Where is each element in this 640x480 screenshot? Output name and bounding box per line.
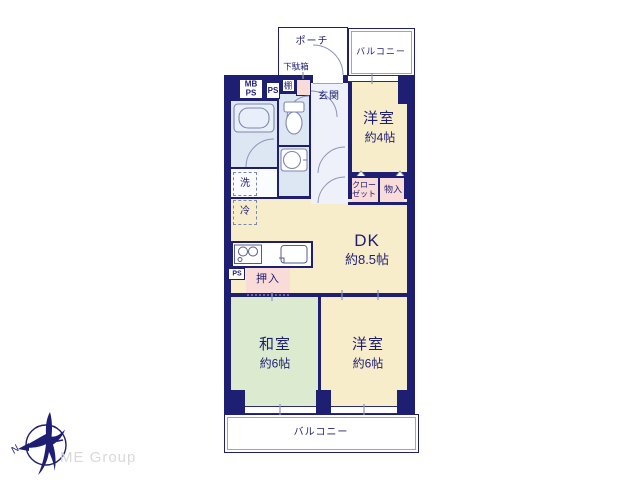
toilet-room <box>279 94 309 145</box>
balcony-bottom-label: バルコニー <box>294 428 349 439</box>
kitchen-counter <box>231 241 313 268</box>
dk-name-label: DK <box>354 232 380 250</box>
ps-mid-label: PS <box>232 270 241 277</box>
corner-pillar-bottom-right <box>397 390 407 406</box>
corner-pillar-top-right <box>398 82 407 104</box>
japanese-room-name-label: 和室 <box>259 337 291 353</box>
floorplan-canvas: N ポーチ バルコニー 下駄箱 玄関 MB PS PS 棚 洗 冷 洋室 約4帖… <box>0 0 640 480</box>
closet-label-line2: ゼット <box>352 190 376 199</box>
west4-name-label: 洋室 <box>363 111 395 127</box>
entrance-door-opening <box>313 75 343 84</box>
corner-pillar-bottom-left <box>231 390 245 406</box>
compass-north-label: N <box>9 443 22 457</box>
shelf-label: 棚 <box>284 82 293 91</box>
meter-box-label: MB PS <box>245 80 257 97</box>
window-west6 <box>331 406 397 414</box>
hall-partition-wall <box>348 83 352 172</box>
dk-size-label: 約8.5帖 <box>345 253 389 267</box>
window-west4 <box>348 75 398 82</box>
closet-bottom-wall <box>348 202 407 205</box>
west4-size-label: 約4帖 <box>365 132 396 145</box>
company-name: ME Group <box>60 449 136 466</box>
pillar-bottom-middle <box>316 390 331 406</box>
bathroom <box>231 101 277 167</box>
shoe-cabinet-box <box>296 79 311 96</box>
storage-label: 物入 <box>384 185 402 194</box>
window-japanese-room <box>245 406 316 414</box>
balcony-top-label: バルコニー <box>356 47 406 56</box>
west6-name-label: 洋室 <box>352 337 384 353</box>
ps-top-label: PS <box>268 87 279 95</box>
closet-label: クロー ゼット <box>352 181 376 198</box>
west6-size-label: 約6帖 <box>353 358 384 371</box>
washroom <box>279 147 309 196</box>
porch-label: ポーチ <box>296 37 329 48</box>
fridge-label: 冷 <box>240 207 250 218</box>
japanese-room-size-label: 約6帖 <box>260 358 291 371</box>
meter-box-line2: PS <box>245 89 257 98</box>
compass-icon: N <box>9 412 66 475</box>
closet-divider-wall <box>378 178 380 202</box>
bird-mark-icon <box>24 412 65 475</box>
shoe-cabinet-label: 下駄箱 <box>283 63 309 72</box>
oshiire-label: 押入 <box>256 274 280 286</box>
entrance-label: 玄関 <box>318 92 340 103</box>
washer-label: 洗 <box>240 179 250 190</box>
